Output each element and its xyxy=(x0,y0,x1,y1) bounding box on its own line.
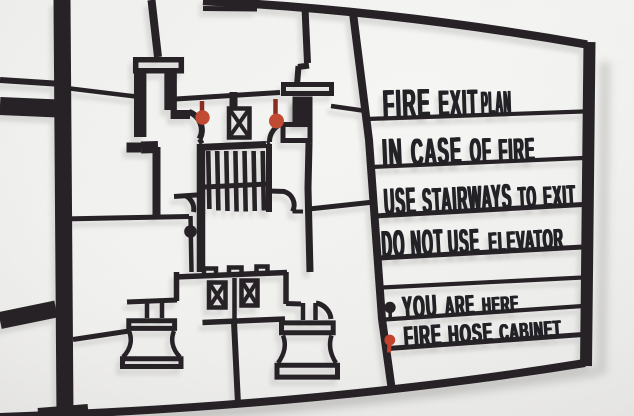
svg-text:EXIT: EXIT xyxy=(438,82,479,124)
svg-text:NOT: NOT xyxy=(410,221,445,264)
svg-text:OF: OF xyxy=(469,131,493,171)
svg-text:TO: TO xyxy=(517,180,538,215)
svg-text:IN: IN xyxy=(381,130,404,176)
svg-text:PLAN: PLAN xyxy=(481,85,513,123)
svg-text:HOSE: HOSE xyxy=(447,317,494,350)
svg-text:HERE: HERE xyxy=(481,291,520,318)
svg-text:FIRE: FIRE xyxy=(403,318,443,354)
svg-text:USE: USE xyxy=(447,221,481,262)
svg-text:CASE: CASE xyxy=(410,131,463,175)
svg-text:STAIRWAYS: STAIRWAYS xyxy=(421,177,513,221)
svg-text:FIRE: FIRE xyxy=(498,132,536,170)
svg-text:ELEVATOR: ELEVATOR xyxy=(488,222,565,258)
svg-text:EXIT: EXIT xyxy=(542,179,577,213)
svg-text:FIRE: FIRE xyxy=(382,80,432,126)
svg-text:CABINET: CABINET xyxy=(499,315,563,346)
svg-text:USE: USE xyxy=(383,180,418,224)
svg-text:DO: DO xyxy=(381,223,407,267)
svg-text:ARE: ARE xyxy=(444,289,476,322)
